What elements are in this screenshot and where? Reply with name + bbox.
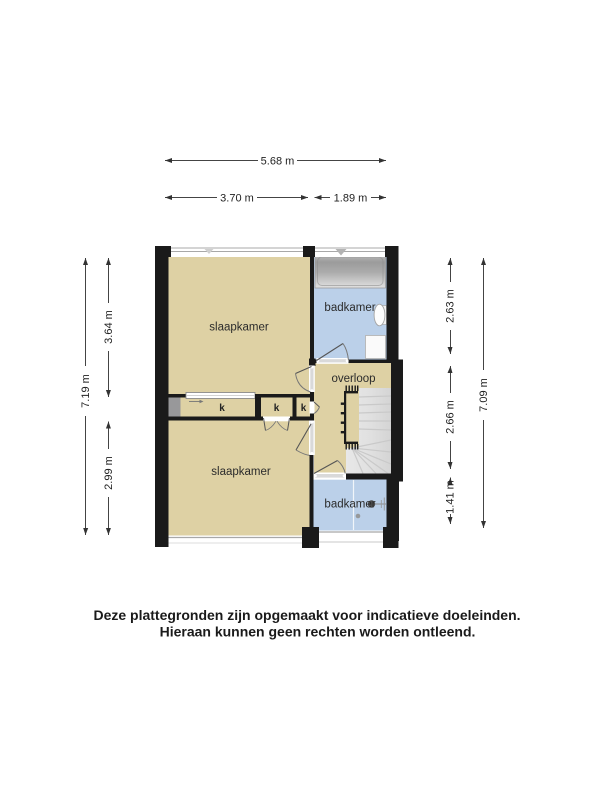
- svg-text:5.68 m: 5.68 m: [261, 156, 295, 168]
- svg-text:k: k: [274, 403, 280, 414]
- svg-text:2.63 m: 2.63 m: [445, 289, 457, 323]
- svg-text:3.64 m: 3.64 m: [103, 310, 115, 344]
- svg-text:1.89 m: 1.89 m: [334, 193, 368, 205]
- svg-text:Deze plattegronden zijn opgema: Deze plattegronden zijn opgemaakt voor i…: [93, 607, 520, 623]
- svg-text:badkamer: badkamer: [324, 302, 375, 314]
- svg-text:2.99 m: 2.99 m: [103, 456, 115, 490]
- svg-text:overloop: overloop: [331, 373, 375, 385]
- svg-text:slaapkamer: slaapkamer: [209, 322, 269, 334]
- svg-text:1.41 m: 1.41 m: [445, 480, 457, 514]
- svg-text:k: k: [219, 403, 225, 414]
- svg-text:badkamer: badkamer: [324, 499, 375, 511]
- svg-text:7.19 m: 7.19 m: [80, 374, 92, 408]
- svg-text:k: k: [301, 403, 307, 414]
- svg-text:7.09 m: 7.09 m: [478, 378, 490, 412]
- svg-text:slaapkamer: slaapkamer: [211, 466, 271, 478]
- svg-text:3.70 m: 3.70 m: [220, 193, 254, 205]
- svg-text:2.66 m: 2.66 m: [445, 400, 457, 434]
- svg-text:Hieraan kunnen geen rechten wo: Hieraan kunnen geen rechten worden ontle…: [160, 624, 476, 640]
